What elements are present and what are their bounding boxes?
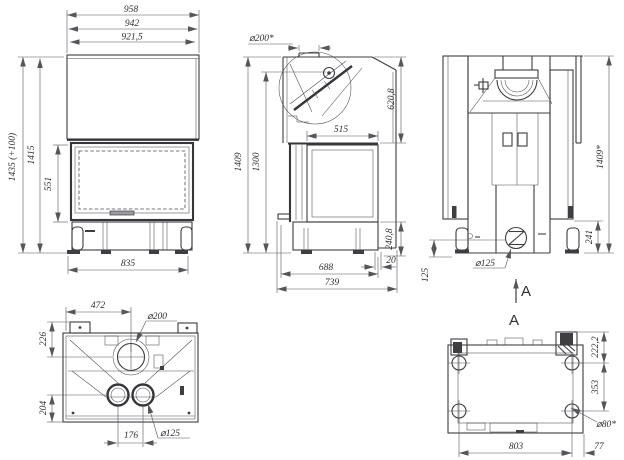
rear-view-dimensions: 1409* 241 125 ⌀125 A A [421,56,614,329]
front-view [67,55,199,254]
bottom-view [448,332,583,433]
dim-bottom-edge-to-hole: 222,2 [591,336,601,358]
dim-front-base-width: 835 [121,259,136,269]
air-inlet-right [133,385,154,406]
dim-side-flue-diameter: ⌀200* [249,34,274,44]
dim-rear-inlet-offset: 125 [421,268,431,283]
flue-collar-ring-outer [497,80,537,100]
dim-rear-height-total: 1409* [596,145,606,169]
technical-drawing-page: 958 942 921,5 1435 (+100) 1415 551 835 [0,0,624,460]
dim-bottom-hole-spacing-depth: 353 [591,380,601,396]
leg-hole-bottom-left [448,400,470,422]
dim-top-rear-offset: 226 [39,332,49,347]
dim-side-height-total: 1409 [234,152,244,171]
rear-view [443,56,583,254]
side-view-dimensions: ⌀200* 515 620,8 1409 1300 240,8 20 68 [234,34,406,293]
dim-front-height-body: 1415 [27,145,37,164]
dim-front-width-inner: 921,5 [121,33,143,43]
dim-top-flue-center-offset: 472 [91,301,106,311]
dim-side-rear-offset: 20 [386,256,396,266]
dim-top-inlet-spacing: 176 [124,431,139,441]
side-view [278,52,396,254]
dim-side-firebox-depth: 515 [334,125,349,135]
door-handle [110,211,134,215]
dim-top-inlet-diameter: ⌀125 [160,429,180,439]
dim-side-hood-height: 620,8 [387,88,397,110]
dim-side-base-height: 240,8 [385,228,395,250]
dim-rear-inlet-diameter: ⌀125 [475,259,495,269]
dim-top-flue-diameter: ⌀200 [147,312,167,322]
dim-front-width-mid: 942 [125,19,140,29]
top-view [63,322,198,422]
dim-front-door-height: 551 [44,177,54,191]
top-view-dimensions: 472 ⌀200 226 204 176 ⌀125 [39,301,190,447]
leg-hole-bottom-right [561,400,583,422]
bottom-view-dimensions: 222,2 353 ⌀80* 803 77 [459,332,616,457]
air-inlet-left [108,385,129,406]
dim-bottom-side-offset: 77 [594,442,605,452]
dim-front-width-total: 958 [124,5,139,15]
dim-top-front-offset: 204 [39,401,49,416]
handle-side-profile [278,214,290,219]
dim-bottom-hole-spacing-width: 803 [509,442,524,452]
dim-rear-inlet-height: 241 [585,230,595,244]
dim-front-height-total: 1435 (+100) [7,133,18,181]
section-a-label: A [521,283,531,300]
dim-side-depth-total: 739 [325,278,340,288]
dim-bottom-hole-diameter: ⌀80* [596,420,616,430]
fireplace-technical-drawing: 958 942 921,5 1435 (+100) 1415 551 835 [0,0,624,460]
dim-side-base-depth: 688 [319,263,334,273]
dim-side-height-firebox-top: 1300 [252,152,262,171]
view-a-title: A [509,312,519,329]
